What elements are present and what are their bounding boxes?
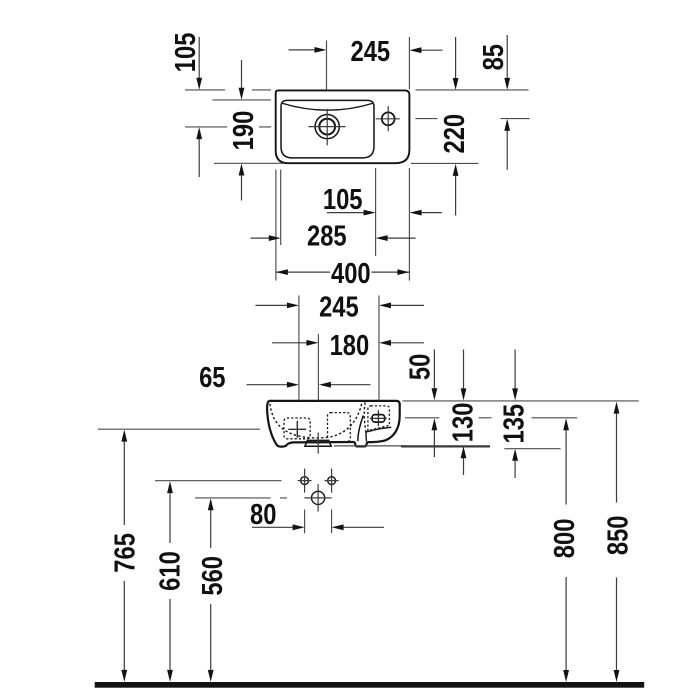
svg-text:135: 135 [497,404,530,444]
svg-text:850: 850 [601,515,634,555]
svg-text:285: 285 [307,219,347,252]
svg-text:50: 50 [403,354,436,380]
svg-text:180: 180 [330,329,370,362]
svg-text:400: 400 [331,257,371,290]
svg-text:245: 245 [319,290,359,323]
svg-text:85: 85 [477,44,510,70]
svg-text:560: 560 [196,556,229,596]
svg-text:105: 105 [323,183,363,216]
svg-text:65: 65 [199,361,225,394]
svg-text:610: 610 [153,551,186,591]
svg-text:220: 220 [438,114,471,154]
svg-text:765: 765 [108,533,141,573]
svg-text:245: 245 [350,35,390,68]
svg-text:190: 190 [227,111,260,151]
svg-text:800: 800 [548,519,581,559]
svg-text:105: 105 [169,33,202,73]
svg-text:80: 80 [250,498,276,531]
svg-text:130: 130 [446,403,479,443]
